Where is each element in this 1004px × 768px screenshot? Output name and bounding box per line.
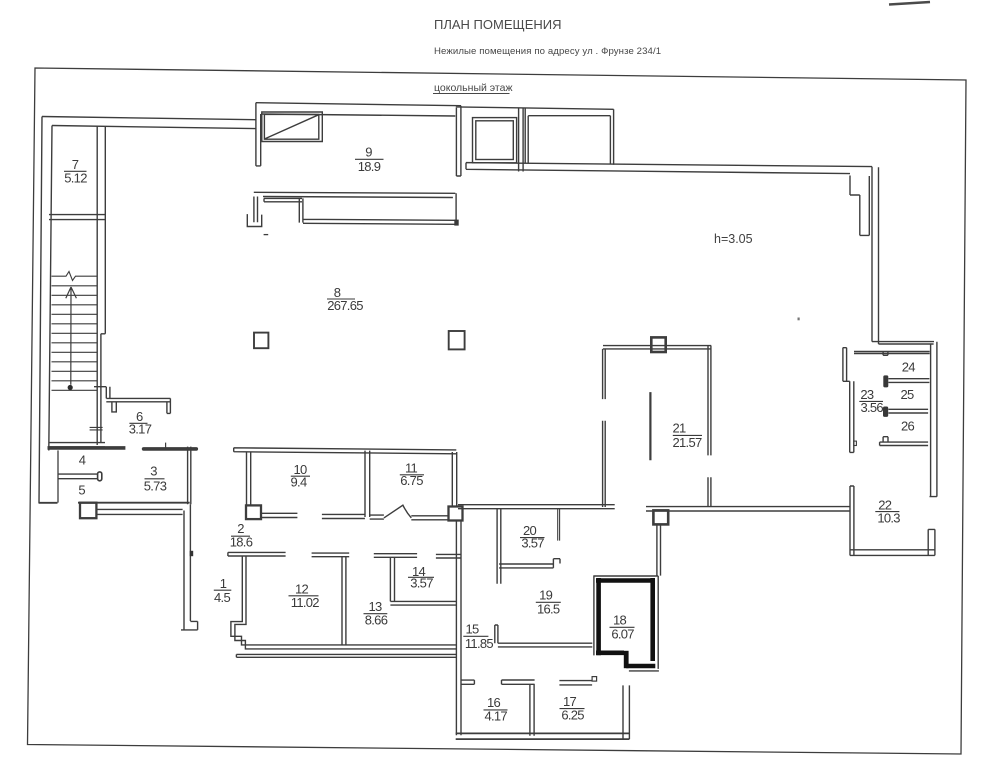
- svg-text:6.25: 6.25: [561, 708, 584, 723]
- svg-text:24: 24: [902, 360, 916, 375]
- svg-text:11.85: 11.85: [465, 636, 494, 651]
- svg-text:16.5: 16.5: [537, 602, 560, 617]
- svg-text:11.02: 11.02: [291, 595, 320, 610]
- svg-text:4.17: 4.17: [484, 709, 507, 724]
- svg-text:5.12: 5.12: [64, 171, 87, 186]
- svg-text:5: 5: [78, 483, 85, 498]
- svg-text:5.73: 5.73: [144, 479, 167, 494]
- svg-text:3.56: 3.56: [860, 400, 883, 415]
- svg-text:21.57: 21.57: [672, 435, 702, 450]
- svg-text:18.6: 18.6: [230, 535, 253, 550]
- svg-text:9.4: 9.4: [291, 475, 307, 490]
- svg-text:19: 19: [539, 588, 553, 603]
- svg-text:3.17: 3.17: [129, 422, 152, 437]
- svg-text:4: 4: [79, 453, 86, 468]
- svg-text:15: 15: [465, 621, 479, 636]
- svg-text:26: 26: [901, 418, 915, 433]
- svg-text:3: 3: [150, 464, 157, 479]
- svg-text:1: 1: [220, 576, 227, 591]
- svg-text:6.07: 6.07: [611, 627, 634, 642]
- svg-text:h=3.05: h=3.05: [714, 232, 753, 246]
- svg-text:3.57: 3.57: [521, 536, 544, 551]
- svg-text:25: 25: [900, 387, 914, 402]
- svg-text:4.5: 4.5: [214, 590, 230, 605]
- svg-text:18.9: 18.9: [358, 159, 381, 174]
- svg-text:267.65: 267.65: [327, 298, 363, 313]
- svg-text:18: 18: [613, 613, 627, 628]
- svg-text:8.66: 8.66: [365, 613, 388, 628]
- svg-text:Нежилые помещения по адресу ул: Нежилые помещения по адресу ул . Фрунзе …: [434, 46, 661, 57]
- svg-text:6.75: 6.75: [400, 473, 423, 488]
- svg-text:3.57: 3.57: [410, 576, 433, 591]
- svg-text:ПЛАН ПОМЕЩЕНИЯ: ПЛАН ПОМЕЩЕНИЯ: [434, 17, 561, 32]
- svg-text:9: 9: [365, 145, 372, 160]
- svg-text:цокольный этаж: цокольный этаж: [434, 82, 512, 94]
- svg-text:10.3: 10.3: [877, 511, 900, 526]
- svg-text:21: 21: [672, 421, 686, 436]
